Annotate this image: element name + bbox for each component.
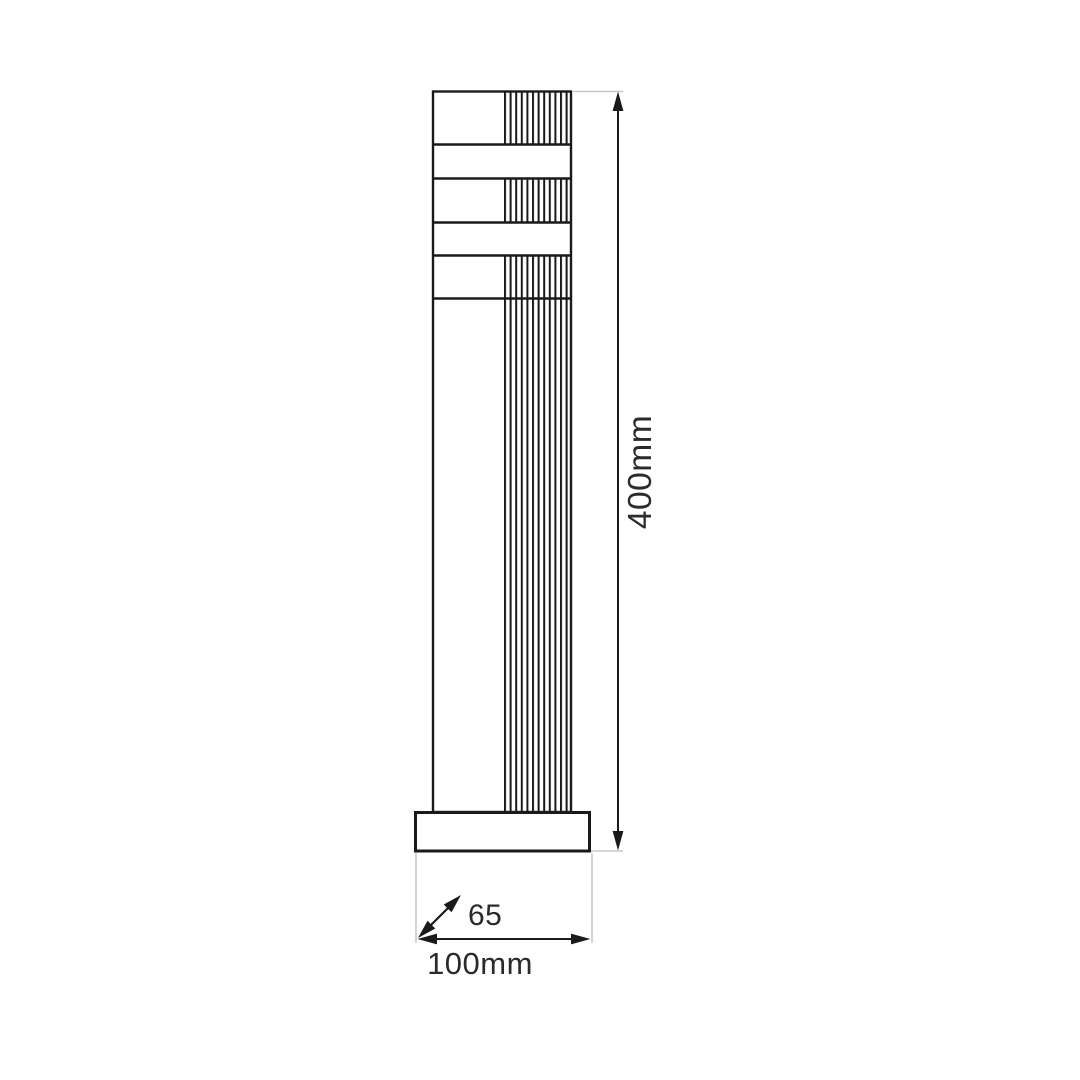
depth-dimension-label: 65	[468, 899, 502, 932]
technical-drawing-page: 400mm 100mm 65	[0, 0, 1080, 1080]
lamp-body-ribbing	[504, 92, 571, 812]
bollard-light-dimension-drawing: 400mm 100mm 65	[0, 0, 1080, 1080]
hatch-segment-2	[504, 179, 571, 223]
width-dimension-label: 100mm	[427, 946, 533, 981]
hatch-segment-1	[504, 92, 571, 144]
height-dimension-label: 400mm	[622, 415, 659, 529]
base-plate-outline	[416, 813, 590, 852]
hatch-segment-3	[504, 256, 571, 812]
